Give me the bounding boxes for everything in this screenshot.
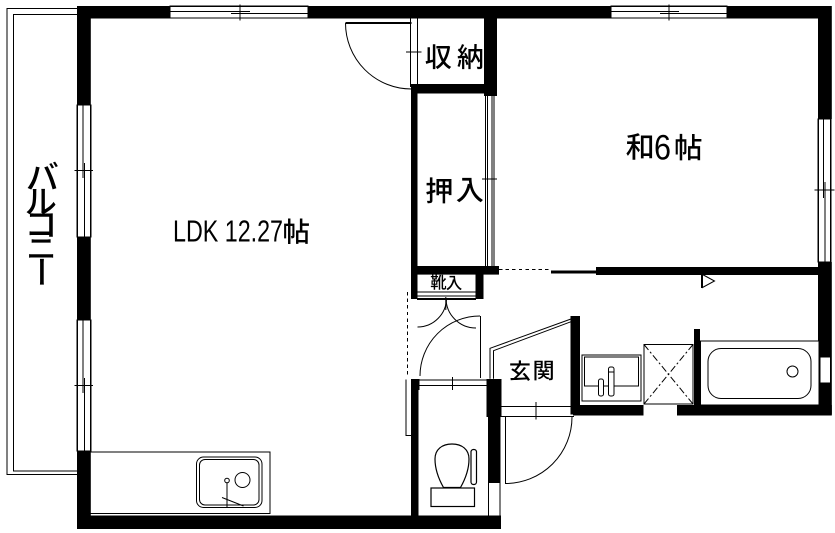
svg-text:6: 6 xyxy=(654,128,671,168)
svg-text:LDK 12.27: LDK 12.27 xyxy=(173,214,283,249)
